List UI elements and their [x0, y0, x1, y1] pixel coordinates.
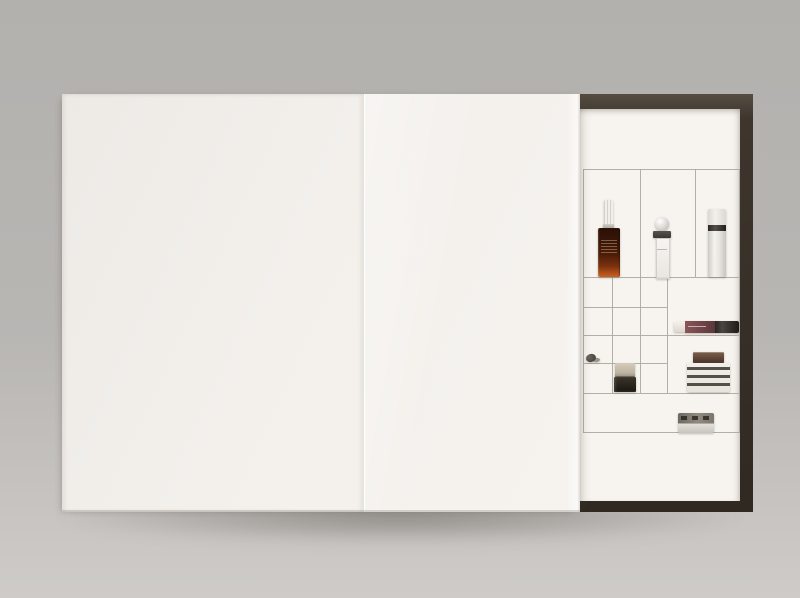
cream-jar-label-stripes	[687, 367, 730, 389]
mini-jar-base	[614, 377, 636, 392]
compartment-tray	[583, 169, 740, 433]
compartment-divider	[583, 169, 584, 433]
perfume-collar	[653, 231, 671, 238]
serum-label	[601, 240, 617, 254]
box-shell-open-end	[580, 94, 753, 512]
lip-gloss-cap	[715, 321, 739, 333]
box-interior	[580, 109, 740, 501]
compartment-divider	[583, 335, 740, 336]
lid-right-edge-highlight	[566, 94, 580, 512]
compartment-divider	[667, 277, 668, 393]
lid-bottom-edge	[62, 510, 580, 512]
mini-jar-cap	[615, 363, 635, 377]
lid-panel-right	[364, 94, 581, 512]
tin-edge-markings	[681, 416, 711, 420]
serum-dropper-cap	[604, 200, 613, 224]
striped-cream-jar	[687, 352, 730, 392]
lid-panel-left	[62, 94, 364, 512]
perfume-glass-body	[656, 238, 670, 279]
compartment-divider	[583, 432, 740, 433]
sliding-lid	[62, 94, 580, 512]
compartment-divider	[739, 169, 740, 433]
airless-pump-bottle	[708, 209, 726, 277]
compartment-divider	[612, 277, 613, 393]
lip-gloss-label-mark	[688, 326, 706, 327]
gift-box	[62, 94, 753, 512]
mini-glass-jar	[614, 363, 636, 392]
perfume-script-mark	[657, 249, 667, 250]
compartment-divider	[583, 393, 740, 394]
tin-base-edge	[678, 423, 714, 433]
pump-cap	[708, 209, 726, 225]
lip-gloss-tip	[674, 322, 685, 332]
round-balm-tin	[678, 413, 714, 433]
mini-perfume-bottle	[653, 217, 671, 277]
photo-canvas	[0, 0, 800, 598]
shell-trinket	[586, 352, 600, 364]
cream-jar-cap	[693, 352, 724, 363]
amber-serum-dropper-bottle	[598, 200, 620, 277]
compartment-divider	[695, 169, 696, 277]
lip-gloss-barrel	[685, 321, 715, 333]
compartment-divider	[583, 307, 667, 308]
compartment-divider	[640, 169, 641, 393]
pump-body	[708, 231, 726, 277]
lip-gloss-tube	[674, 320, 739, 334]
compartment-divider	[583, 169, 740, 170]
perfume-sphere-cap	[655, 217, 669, 231]
